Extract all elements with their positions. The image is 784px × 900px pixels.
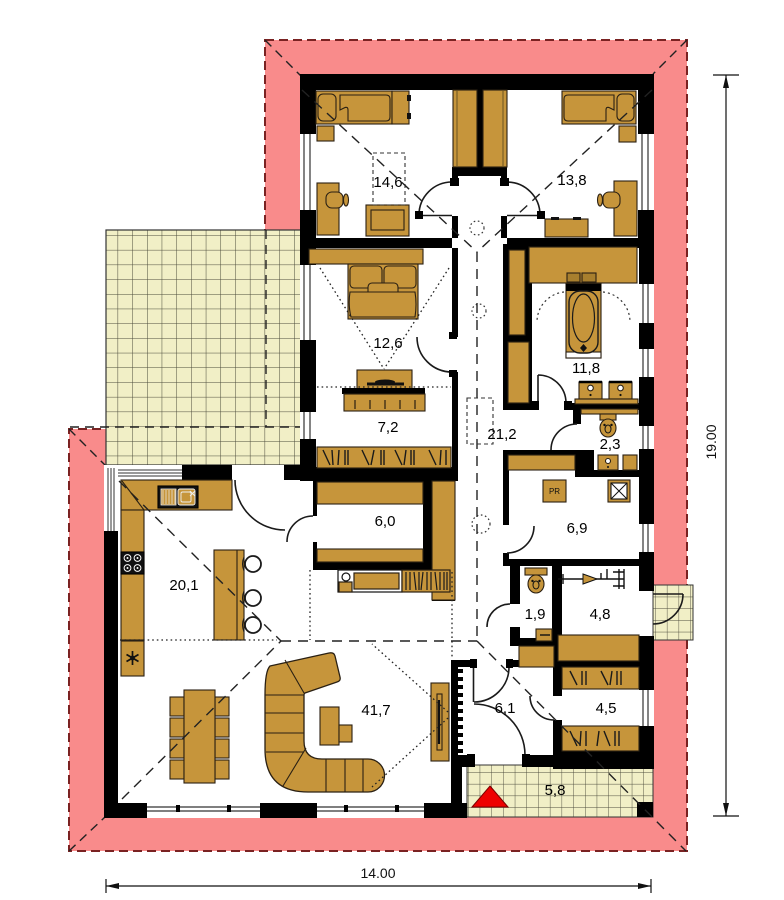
svg-text:13,8: 13,8 bbox=[557, 172, 586, 189]
svg-text:14.00: 14.00 bbox=[360, 865, 395, 881]
svg-text:6,1: 6,1 bbox=[495, 700, 516, 717]
svg-text:14,6: 14,6 bbox=[373, 174, 402, 191]
svg-text:4,5: 4,5 bbox=[596, 700, 617, 717]
svg-text:20,1: 20,1 bbox=[169, 577, 198, 594]
svg-text:11,8: 11,8 bbox=[572, 360, 600, 377]
svg-text:41,7: 41,7 bbox=[361, 702, 390, 719]
svg-text:6,9: 6,9 bbox=[567, 520, 588, 537]
svg-text:6,0: 6,0 bbox=[375, 513, 396, 530]
svg-text:21,2: 21,2 bbox=[487, 426, 516, 443]
svg-text:12,6: 12,6 bbox=[373, 335, 402, 352]
svg-text:19.00: 19.00 bbox=[703, 424, 719, 459]
svg-text:7,2: 7,2 bbox=[378, 419, 399, 436]
svg-text:2,3: 2,3 bbox=[600, 436, 621, 453]
svg-text:4,8: 4,8 bbox=[590, 606, 611, 623]
svg-text:5,8: 5,8 bbox=[545, 782, 566, 799]
svg-text:1,9: 1,9 bbox=[525, 606, 546, 623]
svg-text:PR: PR bbox=[549, 487, 560, 496]
